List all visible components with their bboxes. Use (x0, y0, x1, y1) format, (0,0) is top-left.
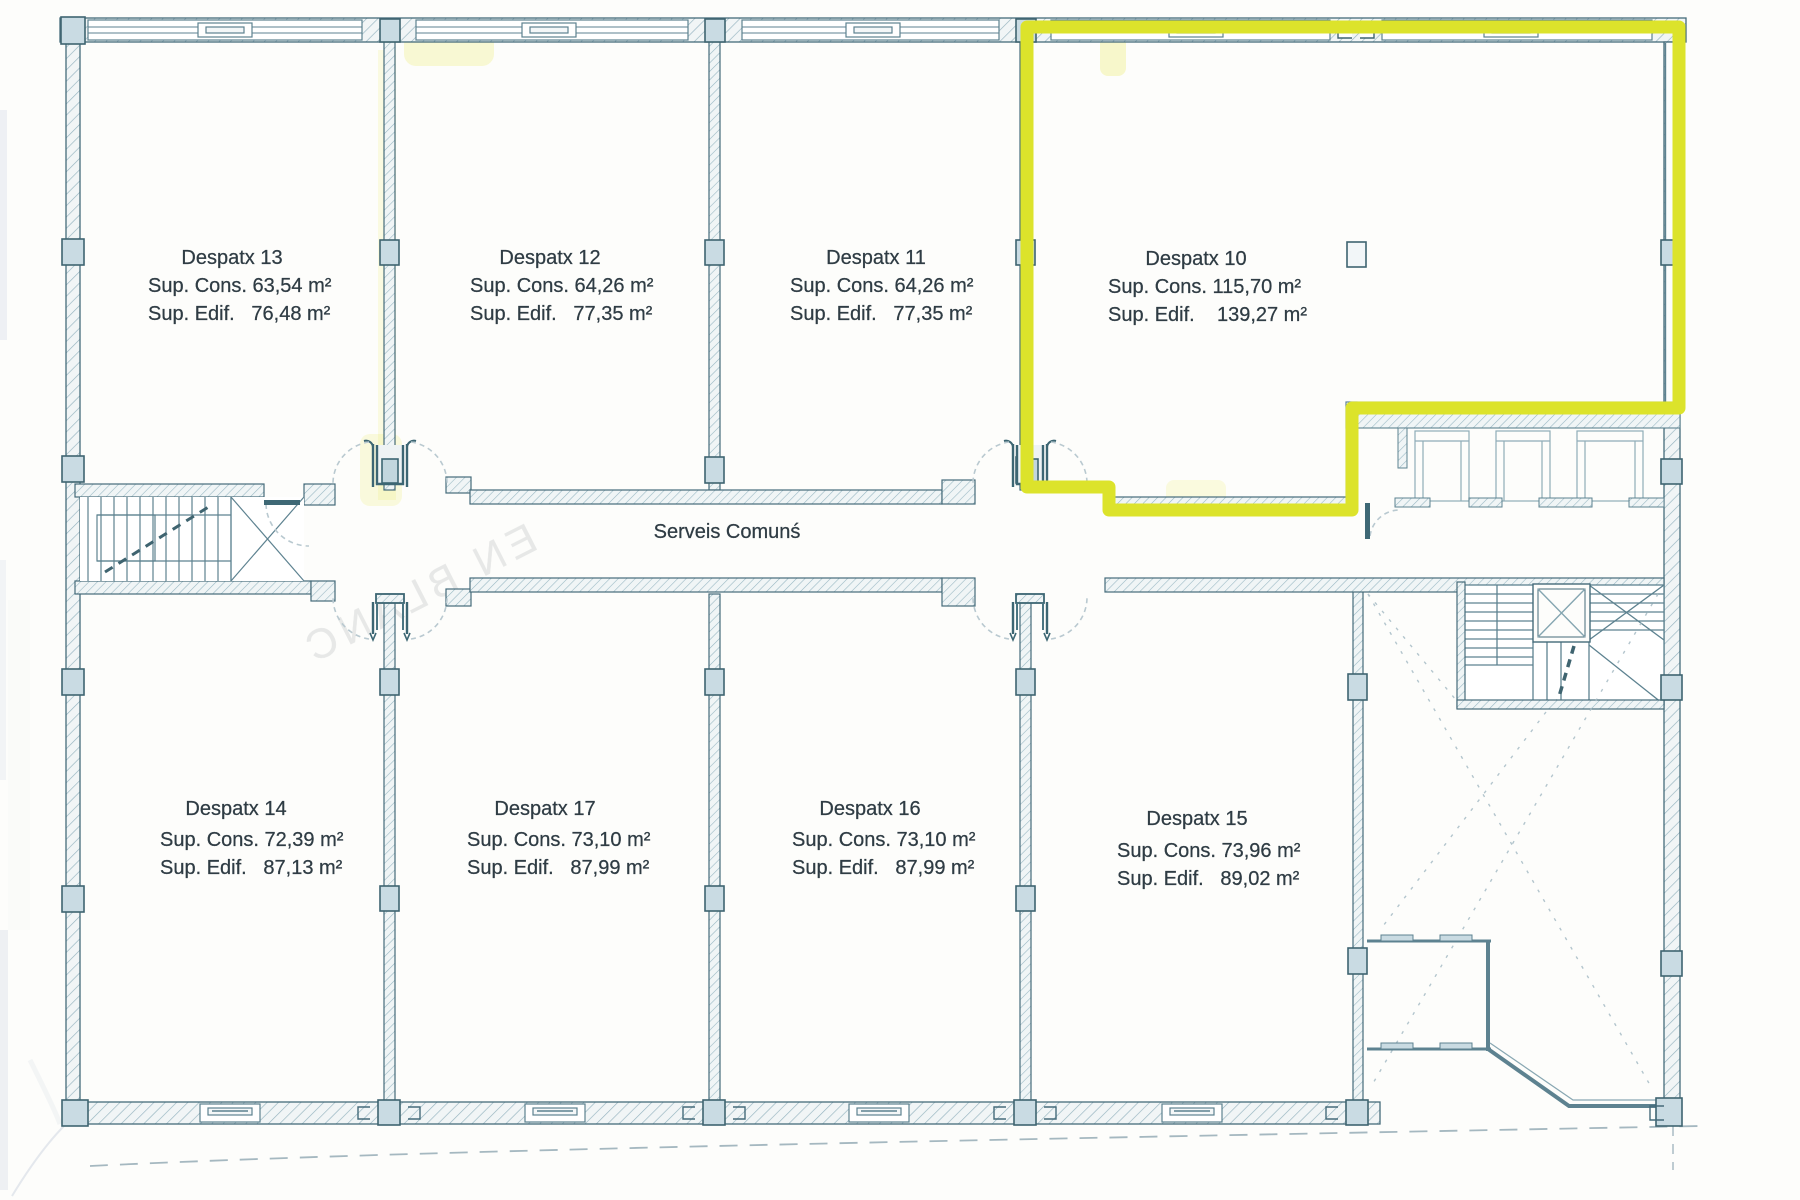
svg-text:Sup. Edif. 87,99 m²: Sup. Edif. 87,99 m² (792, 857, 975, 879)
svg-text:Sup. Cons. 72,39 m²: Sup. Cons. 72,39 m² (160, 829, 344, 851)
svg-text:Sup. Cons. 73,96 m²: Sup. Cons. 73,96 m² (1117, 840, 1301, 862)
svg-text:Sup. Edif. 139,27 m²: Sup. Edif. 139,27 m² (1108, 304, 1307, 326)
svg-text:Despatx 13: Despatx 13 (181, 247, 282, 269)
svg-text:Sup. Edif. 87,99 m²: Sup. Edif. 87,99 m² (467, 857, 650, 879)
svg-text:Sup. Edif. 76,48 m²: Sup. Edif. 76,48 m² (148, 303, 331, 325)
svg-text:Serveis Comunś: Serveis Comunś (654, 521, 801, 543)
svg-text:Sup. Cons. 64,26 m²: Sup. Cons. 64,26 m² (470, 275, 654, 297)
svg-text:Despatx 17: Despatx 17 (494, 798, 595, 820)
svg-text:Sup. Cons. 73,10 m²: Sup. Cons. 73,10 m² (792, 829, 976, 851)
svg-text:Sup. Edif. 87,13 m²: Sup. Edif. 87,13 m² (160, 857, 343, 879)
svg-text:Sup. Cons. 115,70 m²: Sup. Cons. 115,70 m² (1108, 276, 1301, 298)
svg-text:Sup. Edif. 89,02 m²: Sup. Edif. 89,02 m² (1117, 868, 1300, 890)
svg-text:Sup. Cons. 64,26 m²: Sup. Cons. 64,26 m² (790, 275, 974, 297)
svg-text:Sup. Cons. 63,54 m²: Sup. Cons. 63,54 m² (148, 275, 332, 297)
svg-text:Despatx 15: Despatx 15 (1146, 808, 1247, 830)
svg-text:Sup. Edif. 77,35 m²: Sup. Edif. 77,35 m² (790, 303, 973, 325)
svg-text:Sup. Cons. 73,10 m²: Sup. Cons. 73,10 m² (467, 829, 651, 851)
svg-text:Sup. Edif. 77,35 m²: Sup. Edif. 77,35 m² (470, 303, 653, 325)
svg-text:Despatx 10: Despatx 10 (1145, 248, 1246, 270)
svg-text:Despatx 14: Despatx 14 (185, 798, 286, 820)
svg-text:Despatx 12: Despatx 12 (499, 247, 600, 269)
svg-text:Despatx 11: Despatx 11 (826, 247, 926, 269)
svg-text:Despatx 16: Despatx 16 (819, 798, 920, 820)
